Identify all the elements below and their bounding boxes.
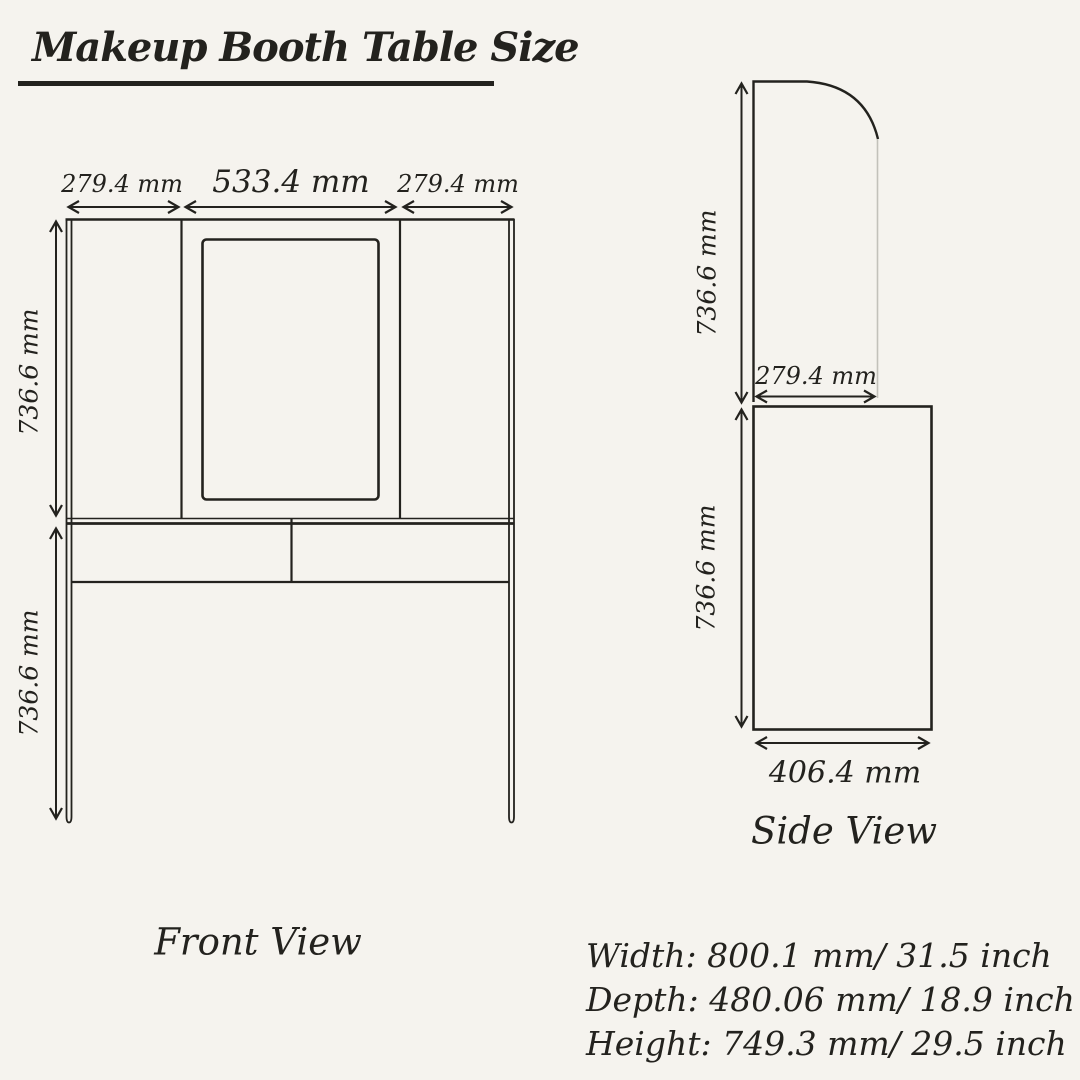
front-dim-right-width-label: 279.4 mm [397, 171, 519, 197]
side-view-drawing [742, 82, 932, 744]
front-view-drawing [56, 207, 515, 823]
front-dim-upper-height-label: 736.6 mm [15, 309, 43, 436]
front-dim-lower-height-label: 736.6 mm [15, 610, 43, 737]
front-dim-center-width-label: 533.4 mm [212, 165, 369, 199]
side-dim-panel-height-label: 736.6 mm [693, 210, 721, 337]
front-dim-left-width-label: 279.4 mm [61, 171, 183, 197]
side-panel-outline [754, 82, 879, 403]
side-dim-table-depth-label: 406.4 mm [769, 757, 921, 790]
overall-specs: Width: 800.1 mm/ 31.5 inch Depth: 480.06… [586, 934, 1075, 1066]
technical-drawing [0, 0, 1080, 1080]
side-dim-panel-depth-label: 279.4 mm [755, 363, 877, 389]
spec-depth: Depth: 480.06 mm/ 18.9 inch [586, 978, 1075, 1022]
front-right-leg [509, 219, 514, 823]
spec-height: Height: 749.3 mm/ 29.5 inch [586, 1022, 1075, 1066]
side-view-label: Side View [751, 812, 937, 853]
side-table-body [754, 407, 932, 730]
makeup-booth-size-diagram: Makeup Booth Table Size [0, 0, 1080, 1080]
spec-width: Width: 800.1 mm/ 31.5 inch [586, 934, 1075, 978]
mirror [203, 240, 379, 500]
side-dim-table-height-label: 736.6 mm [692, 505, 720, 632]
front-left-leg [67, 219, 72, 823]
front-view-label: Front View [154, 923, 362, 964]
